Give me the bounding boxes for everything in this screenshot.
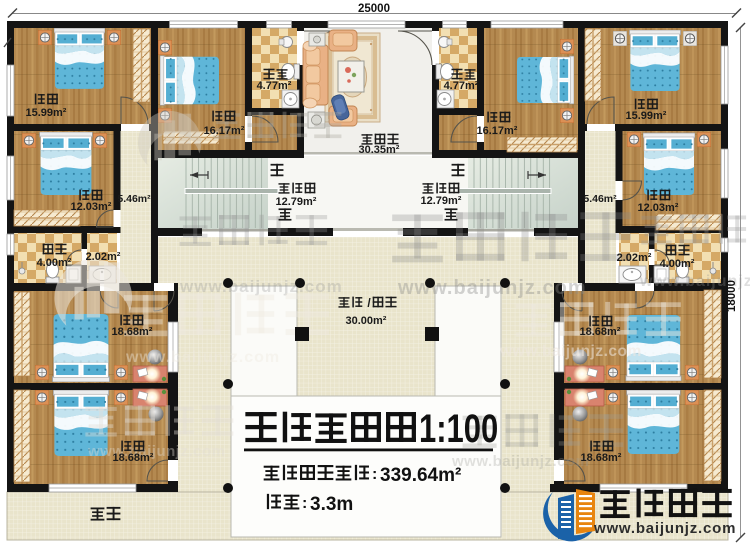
svg-text:4.77m²: 4.77m² bbox=[257, 80, 292, 92]
svg-text:www.baijunjz.com: www.baijunjz.com bbox=[87, 443, 225, 460]
svg-text:18.68m²: 18.68m² bbox=[581, 452, 622, 464]
svg-text:3.3m: 3.3m bbox=[310, 494, 353, 515]
svg-text:30.35m²: 30.35m² bbox=[359, 144, 400, 156]
svg-text:www.baijunjz.com: www.baijunjz.com bbox=[593, 520, 736, 537]
svg-text:18.68m²: 18.68m² bbox=[580, 326, 621, 338]
svg-text:www.baijunjz.com: www.baijunjz.com bbox=[499, 343, 642, 360]
svg-text:15.99m²: 15.99m² bbox=[26, 107, 67, 119]
svg-text:4.77m²: 4.77m² bbox=[444, 80, 479, 92]
svg-text:2.02m²: 2.02m² bbox=[617, 252, 652, 264]
svg-text:4.00m²: 4.00m² bbox=[37, 257, 72, 269]
svg-text:16.17m²: 16.17m² bbox=[477, 125, 518, 137]
svg-text:12.79m²: 12.79m² bbox=[421, 195, 462, 207]
svg-text::: : bbox=[302, 495, 307, 512]
svg-text:18000: 18000 bbox=[726, 280, 738, 312]
svg-text:2.02m²: 2.02m² bbox=[86, 251, 121, 263]
svg-text:5.46m²: 5.46m² bbox=[117, 193, 151, 205]
svg-text:www.baijunjz.com: www.baijunjz.com bbox=[451, 453, 589, 470]
svg-text:30.00m²: 30.00m² bbox=[346, 315, 387, 327]
svg-text:18.68m²: 18.68m² bbox=[113, 452, 154, 464]
svg-text:4.00m²: 4.00m² bbox=[660, 258, 695, 270]
svg-text:www.baijunjz.com: www.baijunjz.com bbox=[179, 277, 343, 296]
svg-text:25000: 25000 bbox=[358, 3, 390, 15]
svg-text:12.03m²: 12.03m² bbox=[638, 202, 679, 214]
svg-text:www.baijunjz.com: www.baijunjz.com bbox=[125, 349, 280, 366]
svg-text:16.17m²: 16.17m² bbox=[204, 125, 245, 137]
svg-text:5.46m²: 5.46m² bbox=[583, 193, 617, 205]
svg-text:18.68m²: 18.68m² bbox=[112, 326, 153, 338]
svg-text:www.baijunjz.com: www.baijunjz.com bbox=[397, 277, 587, 299]
svg-text:12.03m²: 12.03m² bbox=[71, 201, 112, 213]
svg-text:12.79m²: 12.79m² bbox=[276, 196, 317, 208]
svg-text:339.64m²: 339.64m² bbox=[380, 465, 461, 486]
svg-text:15.99m²: 15.99m² bbox=[626, 110, 667, 122]
svg-text::: : bbox=[372, 466, 377, 483]
svg-text:1:100: 1:100 bbox=[419, 405, 498, 451]
